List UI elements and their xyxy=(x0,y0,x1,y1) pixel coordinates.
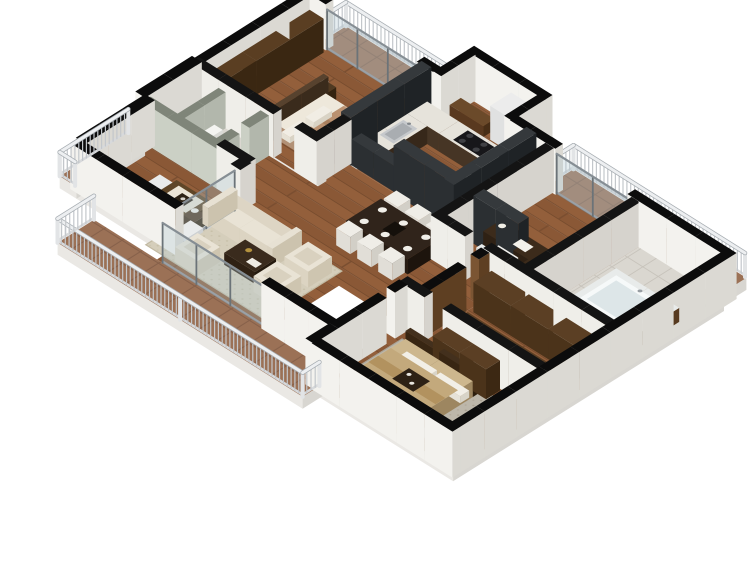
kitchen-counter-north xyxy=(459,139,466,143)
wall-bedroom1-south-a xyxy=(273,109,281,158)
bed2 xyxy=(409,382,414,385)
sofa xyxy=(203,205,209,228)
low-table-tatami xyxy=(180,197,185,200)
kitchen-counter-north xyxy=(473,148,480,152)
coffee-table xyxy=(245,248,252,252)
kitchen-counter-north xyxy=(480,143,487,147)
wall-bedroom2-west-a xyxy=(387,287,395,338)
dining-table xyxy=(381,232,390,237)
wall-bedroom1-east xyxy=(308,136,316,185)
office-desk xyxy=(498,224,506,229)
kitchen-counter-north xyxy=(466,134,473,138)
bed2 xyxy=(406,373,411,376)
floor-plan-3d-render xyxy=(0,0,753,564)
dining-table xyxy=(378,207,387,212)
kitchen-counter-west xyxy=(407,123,411,125)
wall-bedroom2-south xyxy=(452,426,460,477)
dining-table xyxy=(421,235,430,240)
bathtub xyxy=(638,289,643,292)
wall-bedroom2-west-a xyxy=(395,285,408,339)
dining-table xyxy=(360,219,369,224)
dining-table xyxy=(403,246,412,251)
floor-plan-svg xyxy=(0,0,753,564)
dining-table xyxy=(399,220,408,225)
wall-bedroom2-north-a xyxy=(424,292,432,341)
